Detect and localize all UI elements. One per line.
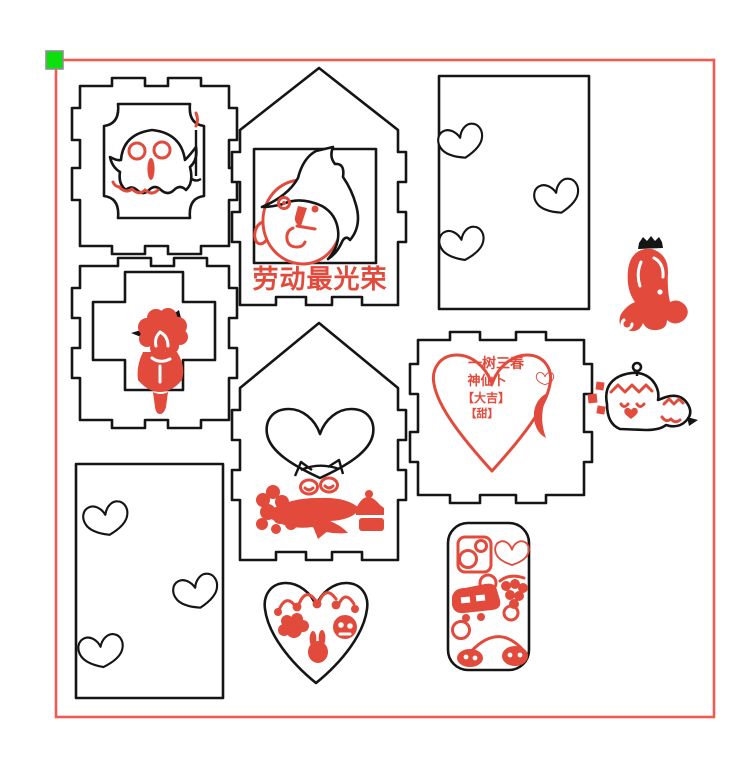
blessing-line3: 【大吉】 (462, 390, 510, 405)
hearts-board-top[interactable] (436, 76, 589, 309)
chick-antenna (633, 363, 641, 371)
rounded-tag-panel[interactable] (448, 523, 529, 670)
ghost-panel[interactable] (72, 78, 237, 254)
octopus-charm[interactable] (619, 236, 687, 331)
flower-panel[interactable] (72, 258, 237, 428)
heart-ornament[interactable] (265, 583, 368, 683)
blessing-line2: 神仙卜 (467, 373, 506, 389)
blessing-line1: 一树三春 (468, 355, 525, 372)
hearts-board-bottom[interactable] (76, 464, 223, 698)
blessing-heart-panel[interactable]: 一树三春 神仙卜 【大吉】 【甜】 (410, 332, 592, 503)
octopus-cap (638, 236, 663, 249)
cat-heart-house-panel[interactable] (232, 323, 406, 560)
chick-tail (687, 417, 698, 426)
workspace-canvas: 劳动最光荣 (0, 0, 739, 772)
witch-house-panel[interactable]: 劳动最光荣 (232, 68, 406, 305)
octopus-body (619, 249, 687, 331)
origin-marker[interactable] (46, 51, 63, 69)
sleeping-chick-charm[interactable] (588, 363, 698, 430)
skull-icon (333, 615, 357, 639)
blessing-line4: 【甜】 (466, 406, 499, 420)
house-banner-text: 劳动最光荣 (252, 265, 387, 295)
